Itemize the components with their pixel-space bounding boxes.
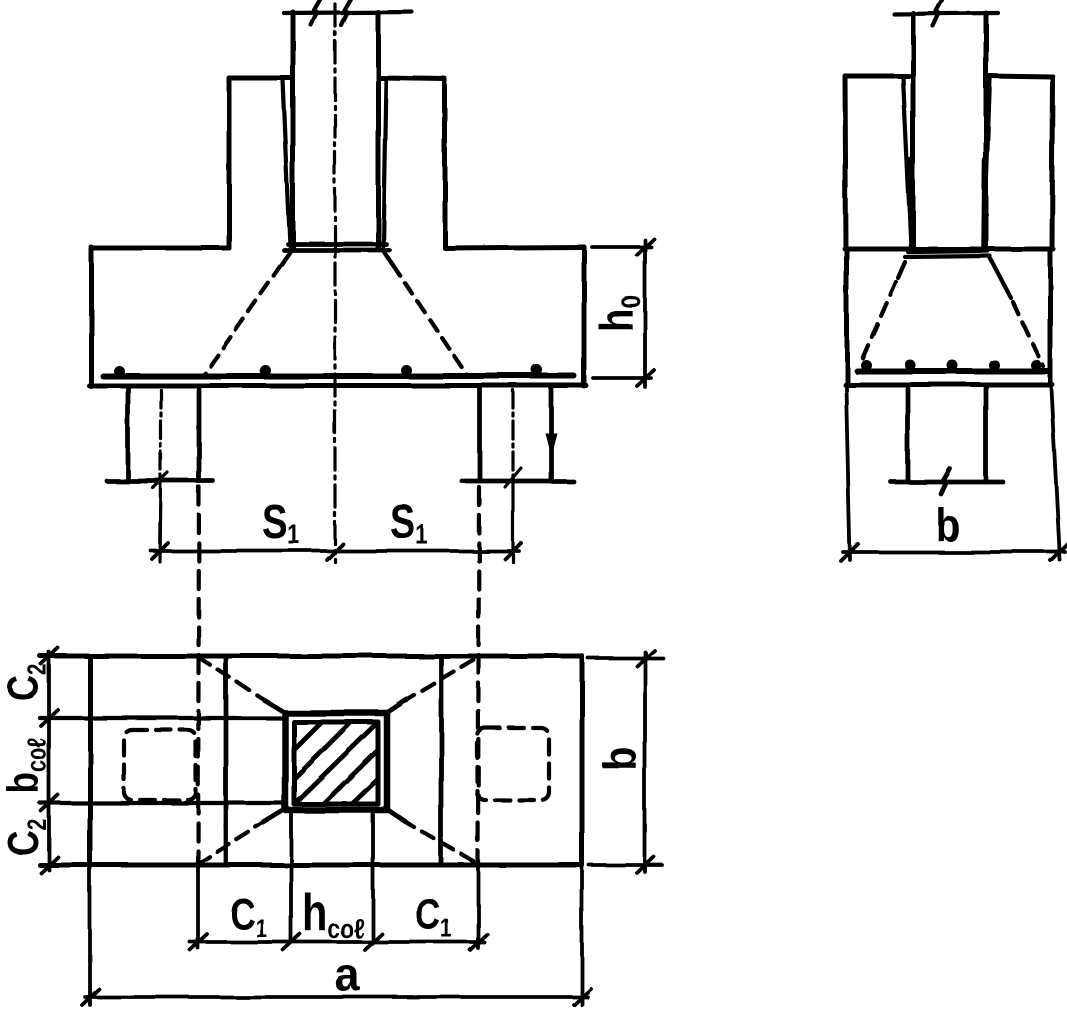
svg-text:a: a: [335, 949, 361, 1001]
svg-text:b: b: [936, 500, 960, 552]
svg-text:b: b: [595, 747, 647, 771]
